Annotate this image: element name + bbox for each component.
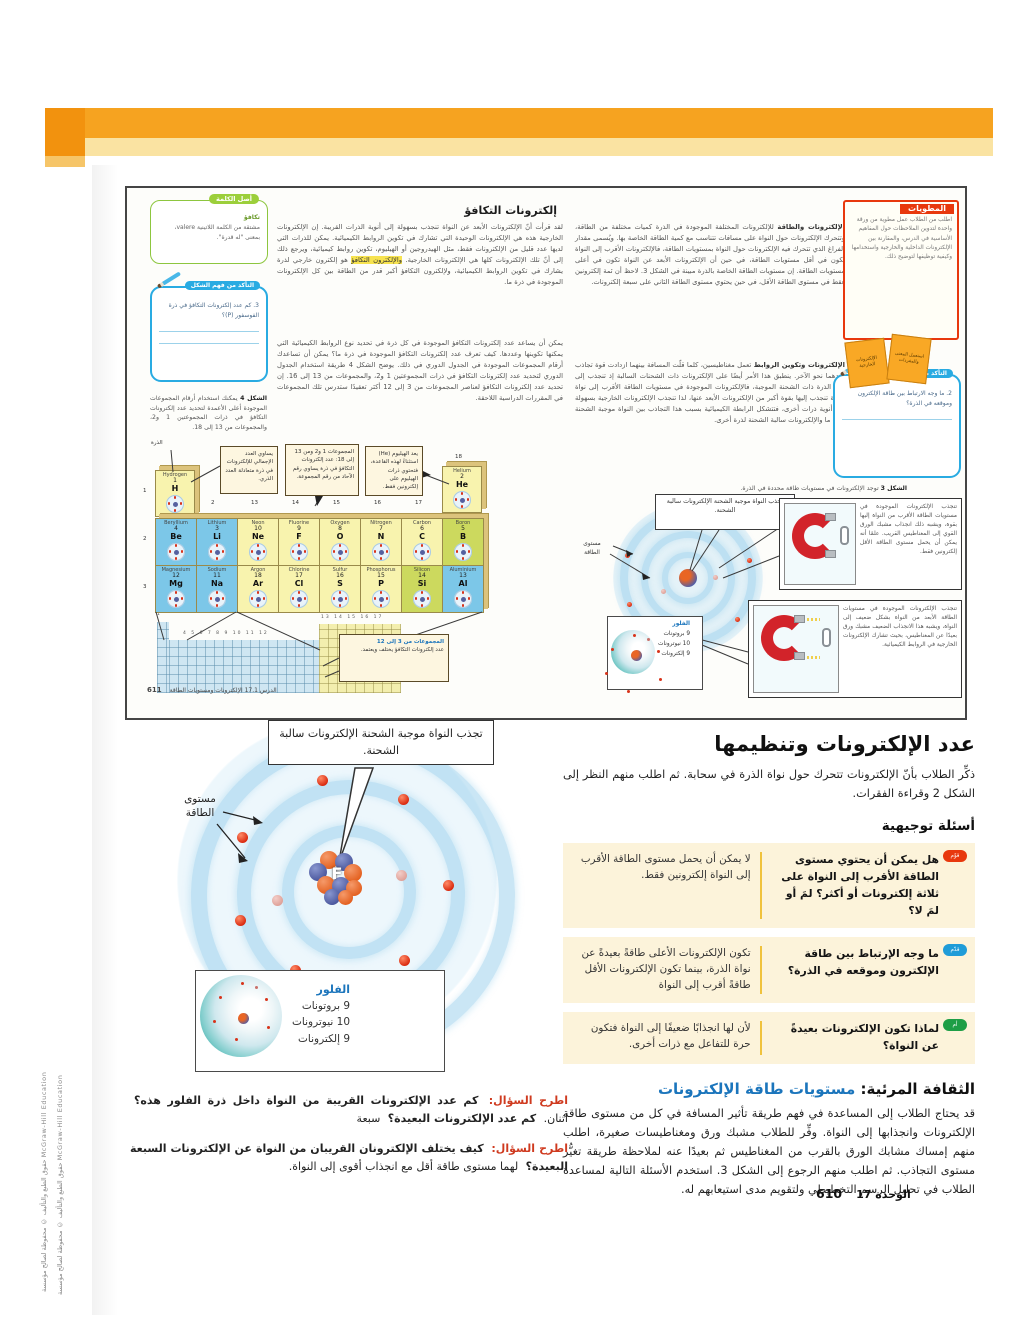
prior-knowledge-box: التأكد من المعرفة الأساسية 2. ما وجه الا… (833, 374, 961, 478)
group-label: 2 (211, 500, 215, 506)
top-band-pale (85, 138, 993, 156)
page-footer: 610 الوحدة 17 (816, 1186, 911, 1201)
group-label-18: 18 (455, 454, 462, 460)
fluorine-neutrons: 10 نيوترونات (292, 1014, 350, 1030)
question-text: لماذا تكون الإلكترونات بعيدةً عن النواة؟ (771, 1021, 939, 1054)
visual-literacy-body: قد يحتاج الطلاب إلى المساعدة في فهم طريق… (563, 1104, 975, 1200)
magnet-weak-text: تنجذب الإلكترونات الموجودة في مستويات ال… (843, 605, 957, 693)
copyright-vertical-2: حقوق الطبع والتأليف © محفوظة لصالح مؤسسة… (56, 875, 64, 1295)
magnet-callout-weak: تنجذب الإلكترونات الموجودة في مستويات ال… (748, 600, 962, 698)
unit-label: الوحدة 17 (856, 1188, 911, 1201)
divider (760, 852, 762, 919)
magnet-strong-illustration (784, 503, 856, 585)
figure3-enlarged: F تجذب النواة موجبة الشحنة الإلكترونات س… (125, 712, 570, 1182)
divider (760, 946, 762, 994)
mini-nucleus-callout: تجذب النواة موجبة الشحنة الإلكترونات سال… (655, 494, 795, 530)
callout-group-rule: المجموعات 1 و2 ومن 13 إلى 18: عدد إلكترو… (285, 444, 359, 496)
page-number: 610 (816, 1186, 842, 1201)
guiding-questions-title: أسئلة توجيهية (563, 818, 975, 834)
prior-knowledge-item: 2. ما وجه الارتباط بين طاقة الإلكترون وم… (842, 389, 952, 408)
guiding-question-1: قوّم هل يمكن أن يحتوي مستوى الطاقة الأقر… (563, 843, 975, 928)
paperclip-icon (840, 526, 849, 545)
callout-helium-exception: يعد الهيليوم (He) استثناءً لهذه القاعدة،… (365, 446, 423, 496)
group-label: 16 (374, 500, 381, 506)
period-label: 1 (143, 488, 147, 494)
bloom-badge-red: قوّم (943, 850, 967, 862)
divider (760, 1021, 762, 1054)
answer-text: لا يمكن أن يحمل مستوى الطاقة الأقرب إلى … (573, 852, 751, 884)
mini-energy-level-label: مستوى الطاقة (571, 538, 613, 559)
magnet-strong-text: تنجذب الإلكترونات الموجودة في مستويات ال… (860, 503, 957, 585)
answer-line (842, 408, 952, 420)
period-label: 2 (143, 536, 147, 542)
atom-pointer-label: الذرة (151, 440, 163, 446)
bloom-badge-green: أم (943, 1019, 967, 1031)
guiding-question-2: قدّم ما وجه الإرتباط بين طاقة الإلكترون … (563, 937, 975, 1003)
period-label: 3 (143, 584, 147, 590)
fluorine-title: الفلور (292, 981, 350, 998)
callout-groups-3-12: المجموعات من 3 إلى 12 عدد إلكترونات التك… (339, 634, 449, 682)
foldable-card-1: الإلكترونات الخارجية (844, 338, 889, 389)
fluorine-sphere (200, 975, 282, 1057)
teacher-column: عدد الإلكترونات وتنظيمها ذكِّر الطلاب بأ… (563, 732, 975, 1200)
fluorine-electrons: 9 إلكترونات (292, 1031, 350, 1047)
student-spread-frame: أصل الكلمة تكافؤ مشتقة من الكلمة اللاتين… (125, 186, 967, 720)
answer-text: تكون الإلكترونات الأعلى طاقةً بعيدةً عن … (573, 946, 751, 994)
scanned-teacher-edition-page: { "colors":{"accent_orange":"#f6a320","b… (0, 0, 1020, 1320)
magnet-weak-illustration (753, 605, 839, 693)
foldable-card-2: استعمل المعنى والمفردات (886, 334, 931, 385)
group-label: 15 (333, 500, 340, 506)
fluorine-inset: الفلور 9 بروتونات 10 نيوترونات 9 إلكترون… (195, 970, 445, 1072)
callout-atomic-number: يساوي العدد الإجمالي للإلكترونات في ذرة … (220, 446, 278, 494)
callout-groups-3-12-title: المجموعات من 3 إلى 12 (377, 639, 444, 645)
nucleus-symbol: F (308, 864, 366, 883)
section-intro: ذكِّر الطلاب بأنّ الإلكترونات تتحرك حول … (563, 765, 975, 803)
figure3-pointers (125, 712, 570, 1182)
answer-text: لأن لها انجذابًا ضعيفًا إلى النواة فتكون… (573, 1021, 751, 1053)
mini-fluorine-title: الفلور (658, 620, 690, 630)
copyright-vertical-1: حقوق الطبع والتأليف © محفوظة لصالح مؤسسة… (40, 862, 48, 1292)
question-text: هل يمكن أن يحتوي مستوى الطاقة الأقرب إلى… (771, 852, 939, 919)
top-band-dark-tail (45, 156, 85, 167)
top-band-amber (85, 108, 993, 138)
visual-literacy-heading: الثقافة المرئية: مستويات طاقة الإلكترونا… (563, 1080, 975, 1098)
callout-groups-3-12-body: عدد إلكترونات التكافؤ يختلف ويعتمد. (361, 647, 444, 653)
fluorine-protons: 9 بروتونات (292, 998, 350, 1014)
nucleus: F (308, 850, 366, 908)
top-band-dark-block (45, 108, 85, 156)
group-label: 13 (251, 500, 258, 506)
nucleus-callout: تجذب النواة موجبة الشحنة الإلكترونات سال… (268, 720, 494, 765)
guiding-question-3: أم لماذا تكون الإلكترونات بعيدةً عن النو… (563, 1012, 975, 1063)
paperclip-icon (822, 628, 831, 647)
section-heading: عدد الإلكترونات وتنظيمها (563, 732, 975, 756)
group-label: 17 (415, 500, 422, 506)
group-label: 14 (292, 500, 299, 506)
question-text: ما وجه الإرتباط بين طاقة الإلكترون وموقع… (771, 946, 939, 979)
bloom-badge-blue: قدّم (943, 944, 967, 956)
mini-fluorine-inset: الفلور 9 بروتونات 10 نيوترونات 9 إلكترون… (607, 616, 703, 690)
magnet-callout-strong: تنجذب الإلكترونات الموجودة في مستويات ال… (779, 498, 962, 590)
spine-shadow (92, 165, 118, 1315)
